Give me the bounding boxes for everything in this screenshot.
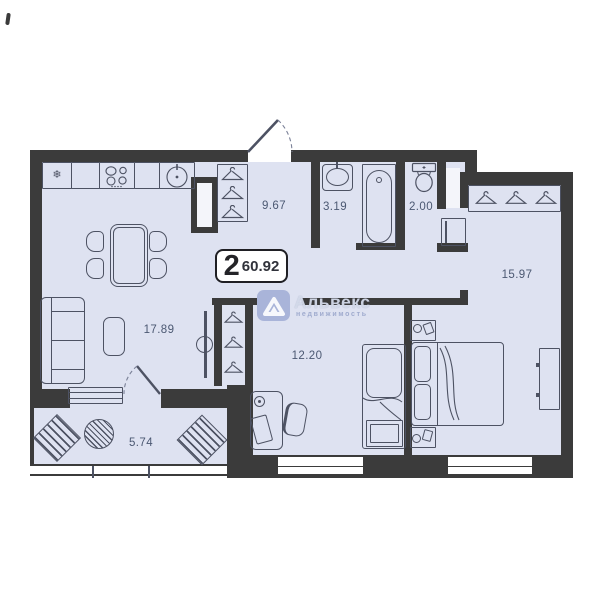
toilet-icon <box>410 162 438 194</box>
tv-stand-shelf <box>69 398 122 399</box>
window-bedroom <box>448 455 532 476</box>
wall-living-balcony-left <box>30 389 70 408</box>
tv-stand-shelf <box>69 392 122 393</box>
wall-bath-left <box>311 162 320 248</box>
hanger-icon <box>504 191 528 206</box>
dresser <box>539 348 560 410</box>
wall-niche-right <box>459 172 468 208</box>
niche <box>446 168 460 208</box>
wall-closet-right <box>245 305 253 388</box>
sofa-cushion-split <box>51 340 84 341</box>
area-label-bathroom: 3.19 <box>323 201 347 213</box>
wall-top-right <box>291 150 477 162</box>
hanger-icon <box>474 191 498 206</box>
stove-burners-icon <box>100 163 134 188</box>
wall-corridor-notch <box>460 290 468 299</box>
balcony-mullion <box>148 466 150 478</box>
vent-shaft <box>191 177 218 233</box>
tv-stand <box>68 387 123 404</box>
sofa-armrest <box>51 311 84 312</box>
balcony-glass-left <box>30 395 34 466</box>
wall-living-balcony-right <box>161 389 227 408</box>
area-label-bedroom: 15.97 <box>502 269 533 281</box>
dining-table-inner <box>113 227 145 284</box>
rooms-count: 2 <box>224 252 239 281</box>
bathtub-drain <box>376 177 382 183</box>
nightstand-lamp <box>413 324 422 333</box>
wall-bath-wc <box>396 162 405 250</box>
dining-chair <box>149 258 167 279</box>
dresser-handle <box>536 363 540 367</box>
wall-right <box>561 172 573 478</box>
hanger-icon <box>223 336 244 350</box>
total-area: 60.92 <box>242 259 280 274</box>
area-label-room: 12.20 <box>292 350 323 362</box>
fridge: ❄ <box>42 162 72 189</box>
washing-machine-door <box>445 221 447 243</box>
hanger-icon <box>219 205 246 220</box>
bath-sink-bowl <box>326 168 349 186</box>
wall-bedroom-top <box>465 172 573 185</box>
hanger-icon <box>219 186 246 201</box>
apartment-badge: 2 60.92 <box>215 249 288 283</box>
pillow <box>414 346 431 382</box>
balcony-table <box>84 419 114 449</box>
kitchen-cabinet <box>71 162 100 189</box>
blanket-fold <box>432 342 477 427</box>
tv-mount <box>196 336 213 353</box>
balcony-door <box>116 356 168 400</box>
bed-end-box-inner <box>370 424 399 443</box>
area-label-balcony: 5.74 <box>129 437 153 449</box>
pillow <box>414 384 431 420</box>
balcony-mullion <box>92 466 94 478</box>
fridge-snowflake-icon: ❄ <box>52 170 61 181</box>
area-label-living: 17.89 <box>144 324 175 336</box>
area-label-wc: 2.00 <box>409 201 433 213</box>
hanger-icon <box>534 191 558 206</box>
stove <box>99 162 135 189</box>
wall-top-left <box>30 150 248 162</box>
kitchen-sink <box>159 162 195 189</box>
wall-corridor-a <box>212 298 257 305</box>
dresser-handle <box>536 393 540 397</box>
area-label-hallway: 9.67 <box>262 200 286 212</box>
watermark-logo-icon <box>257 290 290 321</box>
artifact-mark <box>5 13 11 25</box>
kitchen-cabinet <box>134 162 160 189</box>
wall-wc-right <box>437 162 446 209</box>
desk-lamp-dot <box>258 400 261 403</box>
watermark-tagline: недвижимость <box>296 311 368 318</box>
nightstand-lamp <box>412 434 421 443</box>
sink-icon <box>160 163 194 188</box>
dining-chair <box>149 231 167 252</box>
sofa-armrest <box>51 369 84 370</box>
watermark-brand: Альвекс <box>294 292 371 313</box>
hanger-icon <box>223 361 244 375</box>
entrance-door <box>240 112 300 164</box>
coffee-table <box>103 317 125 356</box>
floor-plan: ❄ <box>0 0 600 600</box>
balcony-glass-bottom <box>30 464 227 476</box>
wall-closet-left <box>214 305 222 386</box>
window-room <box>278 455 363 476</box>
hanger-icon <box>223 311 244 325</box>
dining-chair <box>86 258 104 279</box>
hanger-icon <box>219 167 246 182</box>
dining-chair <box>86 231 104 252</box>
bath-sink-tap <box>336 162 338 169</box>
